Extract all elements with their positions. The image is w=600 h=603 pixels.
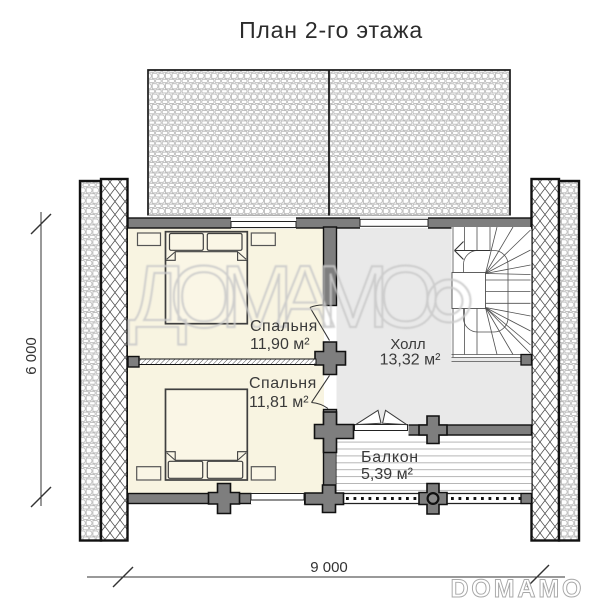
svg-text:Спальня: Спальня	[249, 375, 317, 392]
svg-text:11,81 м²: 11,81 м²	[249, 394, 309, 411]
svg-text:DOMAMO: DOMAMO	[451, 575, 584, 603]
svg-text:Холл: Холл	[390, 336, 425, 353]
svg-text:11,90 м²: 11,90 м²	[250, 336, 310, 353]
svg-text:Балкон: Балкон	[361, 449, 419, 466]
svg-text:6 000: 6 000	[23, 337, 40, 375]
svg-text:Спальня: Спальня	[250, 318, 318, 335]
svg-text:5,39 м²: 5,39 м²	[361, 466, 414, 483]
svg-text:План 2-го этажа: План 2-го этажа	[239, 17, 423, 43]
svg-text:13,32 м²: 13,32 м²	[380, 352, 441, 369]
svg-text:9 000: 9 000	[310, 559, 348, 576]
